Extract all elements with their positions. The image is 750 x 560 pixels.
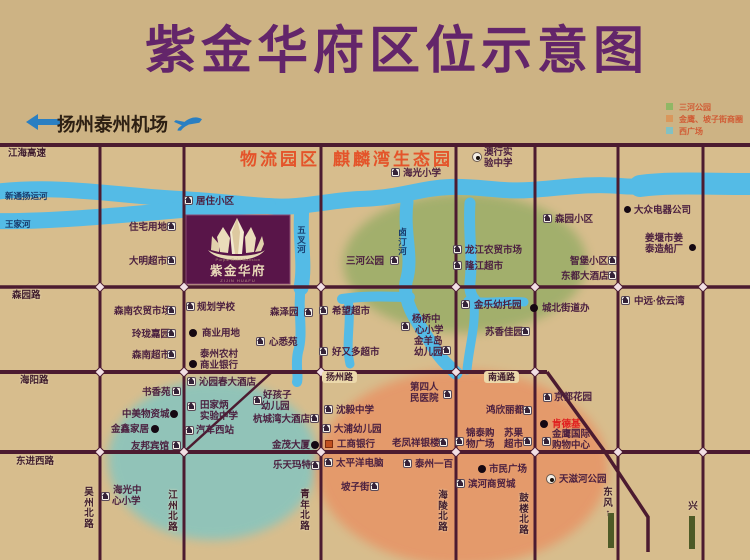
- svg-text:紫金华府: 紫金华府: [210, 263, 266, 278]
- svg-text:ZIJIN HUAFU: ZIJIN HUAFU: [220, 278, 255, 283]
- svg-text:Purple Gold Mansion: Purple Gold Mansion: [216, 257, 261, 262]
